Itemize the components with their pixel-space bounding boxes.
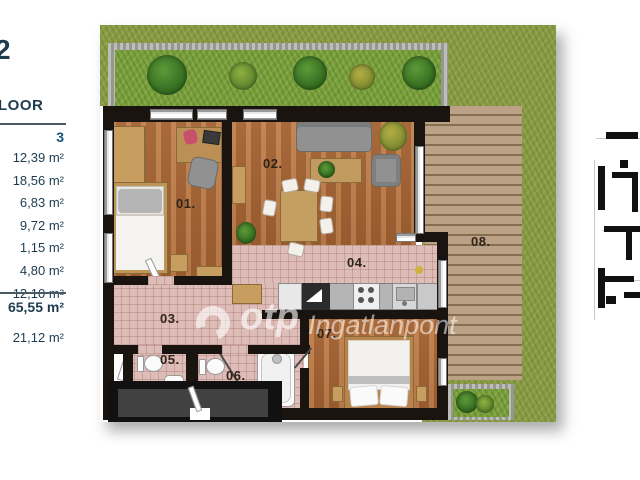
- schematic-wall: [606, 296, 616, 304]
- window: [104, 233, 113, 283]
- room-label-01: 01.: [176, 196, 196, 211]
- schematic-wall: [598, 166, 605, 210]
- schematic-wall: [632, 178, 638, 212]
- otp-logo-icon: [190, 300, 235, 345]
- area-row: 4,80 m²: [0, 260, 64, 283]
- schematic-wall: [626, 232, 632, 260]
- toilet-tank: [137, 356, 144, 372]
- schematic-wall: [604, 276, 634, 282]
- plant-icon: [236, 222, 256, 244]
- area-rows: 12,39 m² 18,56 m² 6,83 m² 9,72 m² 1,15 m…: [0, 147, 64, 305]
- burner-icon: [368, 287, 374, 293]
- schematic-wall: [606, 132, 638, 139]
- window: [150, 109, 193, 120]
- area-row: 12,39 m²: [0, 147, 64, 170]
- bush-icon: [293, 56, 327, 90]
- window: [197, 109, 227, 120]
- room-label-05: 05.: [160, 352, 180, 367]
- area-row: 6,83 m²: [0, 192, 64, 215]
- plant-icon: [318, 161, 335, 178]
- toilet-tank: [199, 359, 206, 375]
- watermark-suffix: Ingatlanpont: [308, 310, 457, 341]
- pillow: [349, 385, 379, 407]
- burner-icon: [358, 287, 364, 293]
- window: [396, 233, 416, 242]
- schematic-wall: [620, 160, 628, 168]
- wall: [222, 122, 232, 283]
- dining-chair: [319, 217, 334, 235]
- schematic-line: [594, 160, 595, 320]
- window: [104, 130, 113, 215]
- terrace-area: 21,12 m²: [0, 330, 64, 345]
- bowl-icon: [415, 266, 423, 274]
- page: 2 LOOR 3 12,39 m² 18,56 m² 6,83 m² 9,72 …: [0, 0, 640, 480]
- table-divider-bottom: [0, 292, 66, 294]
- floor-plan: 01. 02. 03. 04. 05. 06. 07. 08. otp Inga…: [100, 25, 556, 422]
- dining-table: [280, 190, 318, 242]
- nightstand: [332, 386, 343, 402]
- partial-heading: 2: [0, 34, 11, 66]
- laptop-icon: [202, 130, 221, 145]
- fern-icon: [229, 62, 257, 90]
- total-area: 65,55 m²: [0, 299, 64, 315]
- window: [438, 358, 447, 386]
- area-row: 1,15 m²: [0, 237, 64, 260]
- fern-icon: [349, 64, 375, 90]
- terrace-glass-door: [415, 146, 424, 234]
- dining-chair: [319, 195, 334, 212]
- pillow: [118, 189, 162, 213]
- sofa: [296, 121, 372, 152]
- floor-label: LOOR: [0, 97, 43, 114]
- toilet-icon: [206, 358, 225, 375]
- duvet: [116, 214, 164, 270]
- area-table: 2 LOOR 3 12,39 m² 18,56 m² 6,83 m² 9,72 …: [0, 0, 80, 480]
- bush-icon: [476, 395, 494, 413]
- wall: [300, 368, 309, 408]
- armchair: [371, 154, 401, 187]
- pillow: [379, 385, 409, 407]
- window: [243, 109, 277, 120]
- door-opening: [148, 276, 174, 285]
- room-label-02: 02.: [263, 156, 283, 171]
- schematic-wall: [604, 226, 640, 232]
- column-header: 3: [0, 129, 64, 145]
- room-label-08: 08.: [471, 234, 491, 249]
- room-label-04: 04.: [347, 255, 367, 270]
- building-schematic: [592, 110, 640, 322]
- blanket-band: [348, 376, 410, 384]
- area-row: 9,72 m²: [0, 215, 64, 238]
- dining-chair: [262, 199, 278, 217]
- bush-icon: [402, 56, 436, 90]
- table-divider-top: [0, 123, 66, 125]
- nightstand: [416, 386, 427, 402]
- room-label-06: 06.: [226, 368, 246, 383]
- watermark: otp Ingatlanpont: [196, 298, 476, 352]
- door-opening: [138, 345, 162, 354]
- faucet-icon: [272, 354, 282, 364]
- schematic-wall: [598, 268, 605, 308]
- room-label-03: 03.: [160, 311, 180, 326]
- bush-icon: [147, 55, 187, 95]
- plant-icon: [379, 121, 407, 151]
- dining-chair: [303, 178, 321, 194]
- wardrobe: [113, 126, 146, 183]
- bush-icon: [456, 391, 478, 413]
- area-row: 18,56 m²: [0, 170, 64, 193]
- sideboard: [232, 166, 246, 204]
- nightstand: [170, 254, 188, 272]
- schematic-wall: [624, 292, 640, 298]
- watermark-brand: otp: [240, 296, 299, 339]
